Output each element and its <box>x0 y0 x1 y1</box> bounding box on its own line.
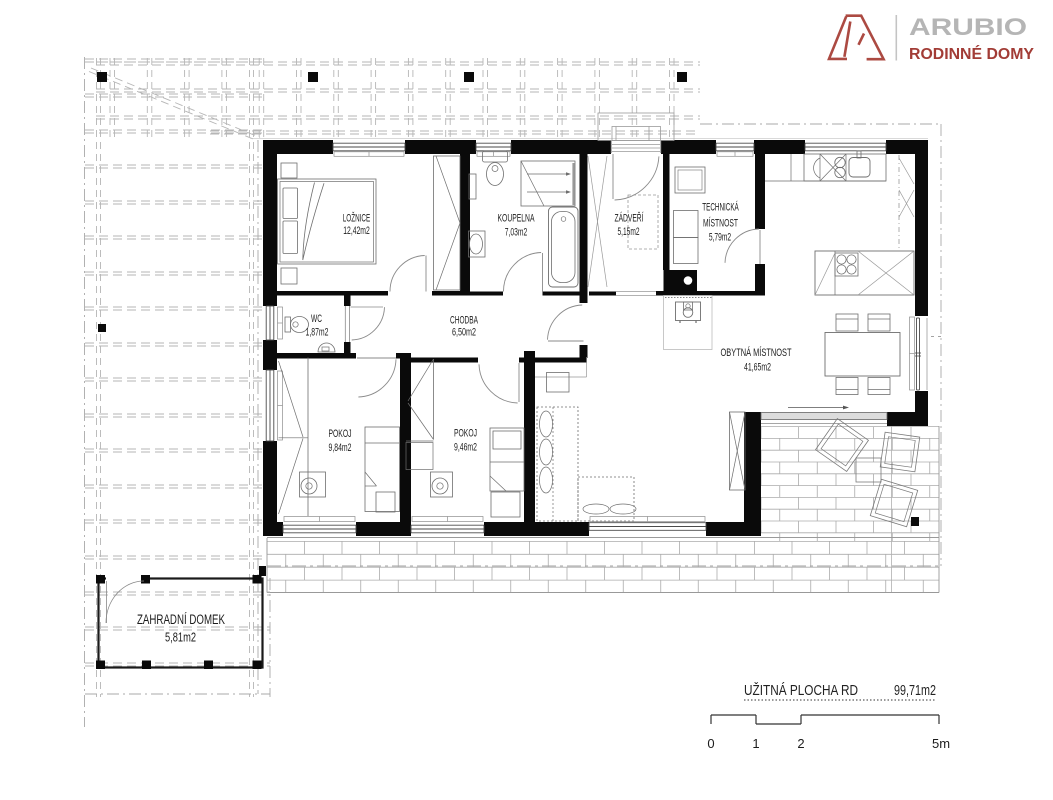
svg-text:99,71m2: 99,71m2 <box>894 683 936 699</box>
svg-text:WC: WC <box>311 313 322 325</box>
svg-text:9,46m2: 9,46m2 <box>454 442 477 454</box>
svg-text:ZÁDVEŘÍ: ZÁDVEŘÍ <box>615 212 645 225</box>
svg-text:1,87m2: 1,87m2 <box>306 327 329 339</box>
svg-text:2: 2 <box>797 736 804 751</box>
svg-text:9,84m2: 9,84m2 <box>329 442 352 454</box>
svg-text:5m: 5m <box>932 736 950 751</box>
svg-text:7,03m2: 7,03m2 <box>505 227 528 239</box>
svg-text:TECHNICKÁ: TECHNICKÁ <box>702 201 739 214</box>
svg-text:OBYTNÁ MÍSTNOST: OBYTNÁ MÍSTNOST <box>721 346 792 359</box>
svg-text:41,65m2: 41,65m2 <box>744 362 771 374</box>
svg-text:12,42m2: 12,42m2 <box>343 225 370 237</box>
svg-text:CHODBA: CHODBA <box>450 315 478 327</box>
svg-text:RODINNÉ DOMY: RODINNÉ DOMY <box>909 46 1035 63</box>
svg-text:LOŽNICE: LOŽNICE <box>343 212 371 225</box>
svg-text:5,81m2: 5,81m2 <box>165 630 196 645</box>
svg-text:6,50m2: 6,50m2 <box>452 327 476 339</box>
svg-text:ARUBIO: ARUBIO <box>909 14 1027 41</box>
svg-text:5,15m2: 5,15m2 <box>618 226 640 238</box>
svg-text:1: 1 <box>752 736 759 751</box>
svg-text:0: 0 <box>707 736 714 751</box>
svg-text:KOUPELNA: KOUPELNA <box>498 213 535 225</box>
svg-text:POKOJ: POKOJ <box>454 428 477 440</box>
svg-text:POKOJ: POKOJ <box>329 428 352 440</box>
svg-text:UŽITNÁ PLOCHA RD: UŽITNÁ PLOCHA RD <box>744 682 858 699</box>
svg-text:5,79m2: 5,79m2 <box>709 231 731 243</box>
svg-text:MÍSTNOST: MÍSTNOST <box>703 217 738 230</box>
svg-text:ZAHRADNÍ DOMEK: ZAHRADNÍ DOMEK <box>137 612 225 627</box>
